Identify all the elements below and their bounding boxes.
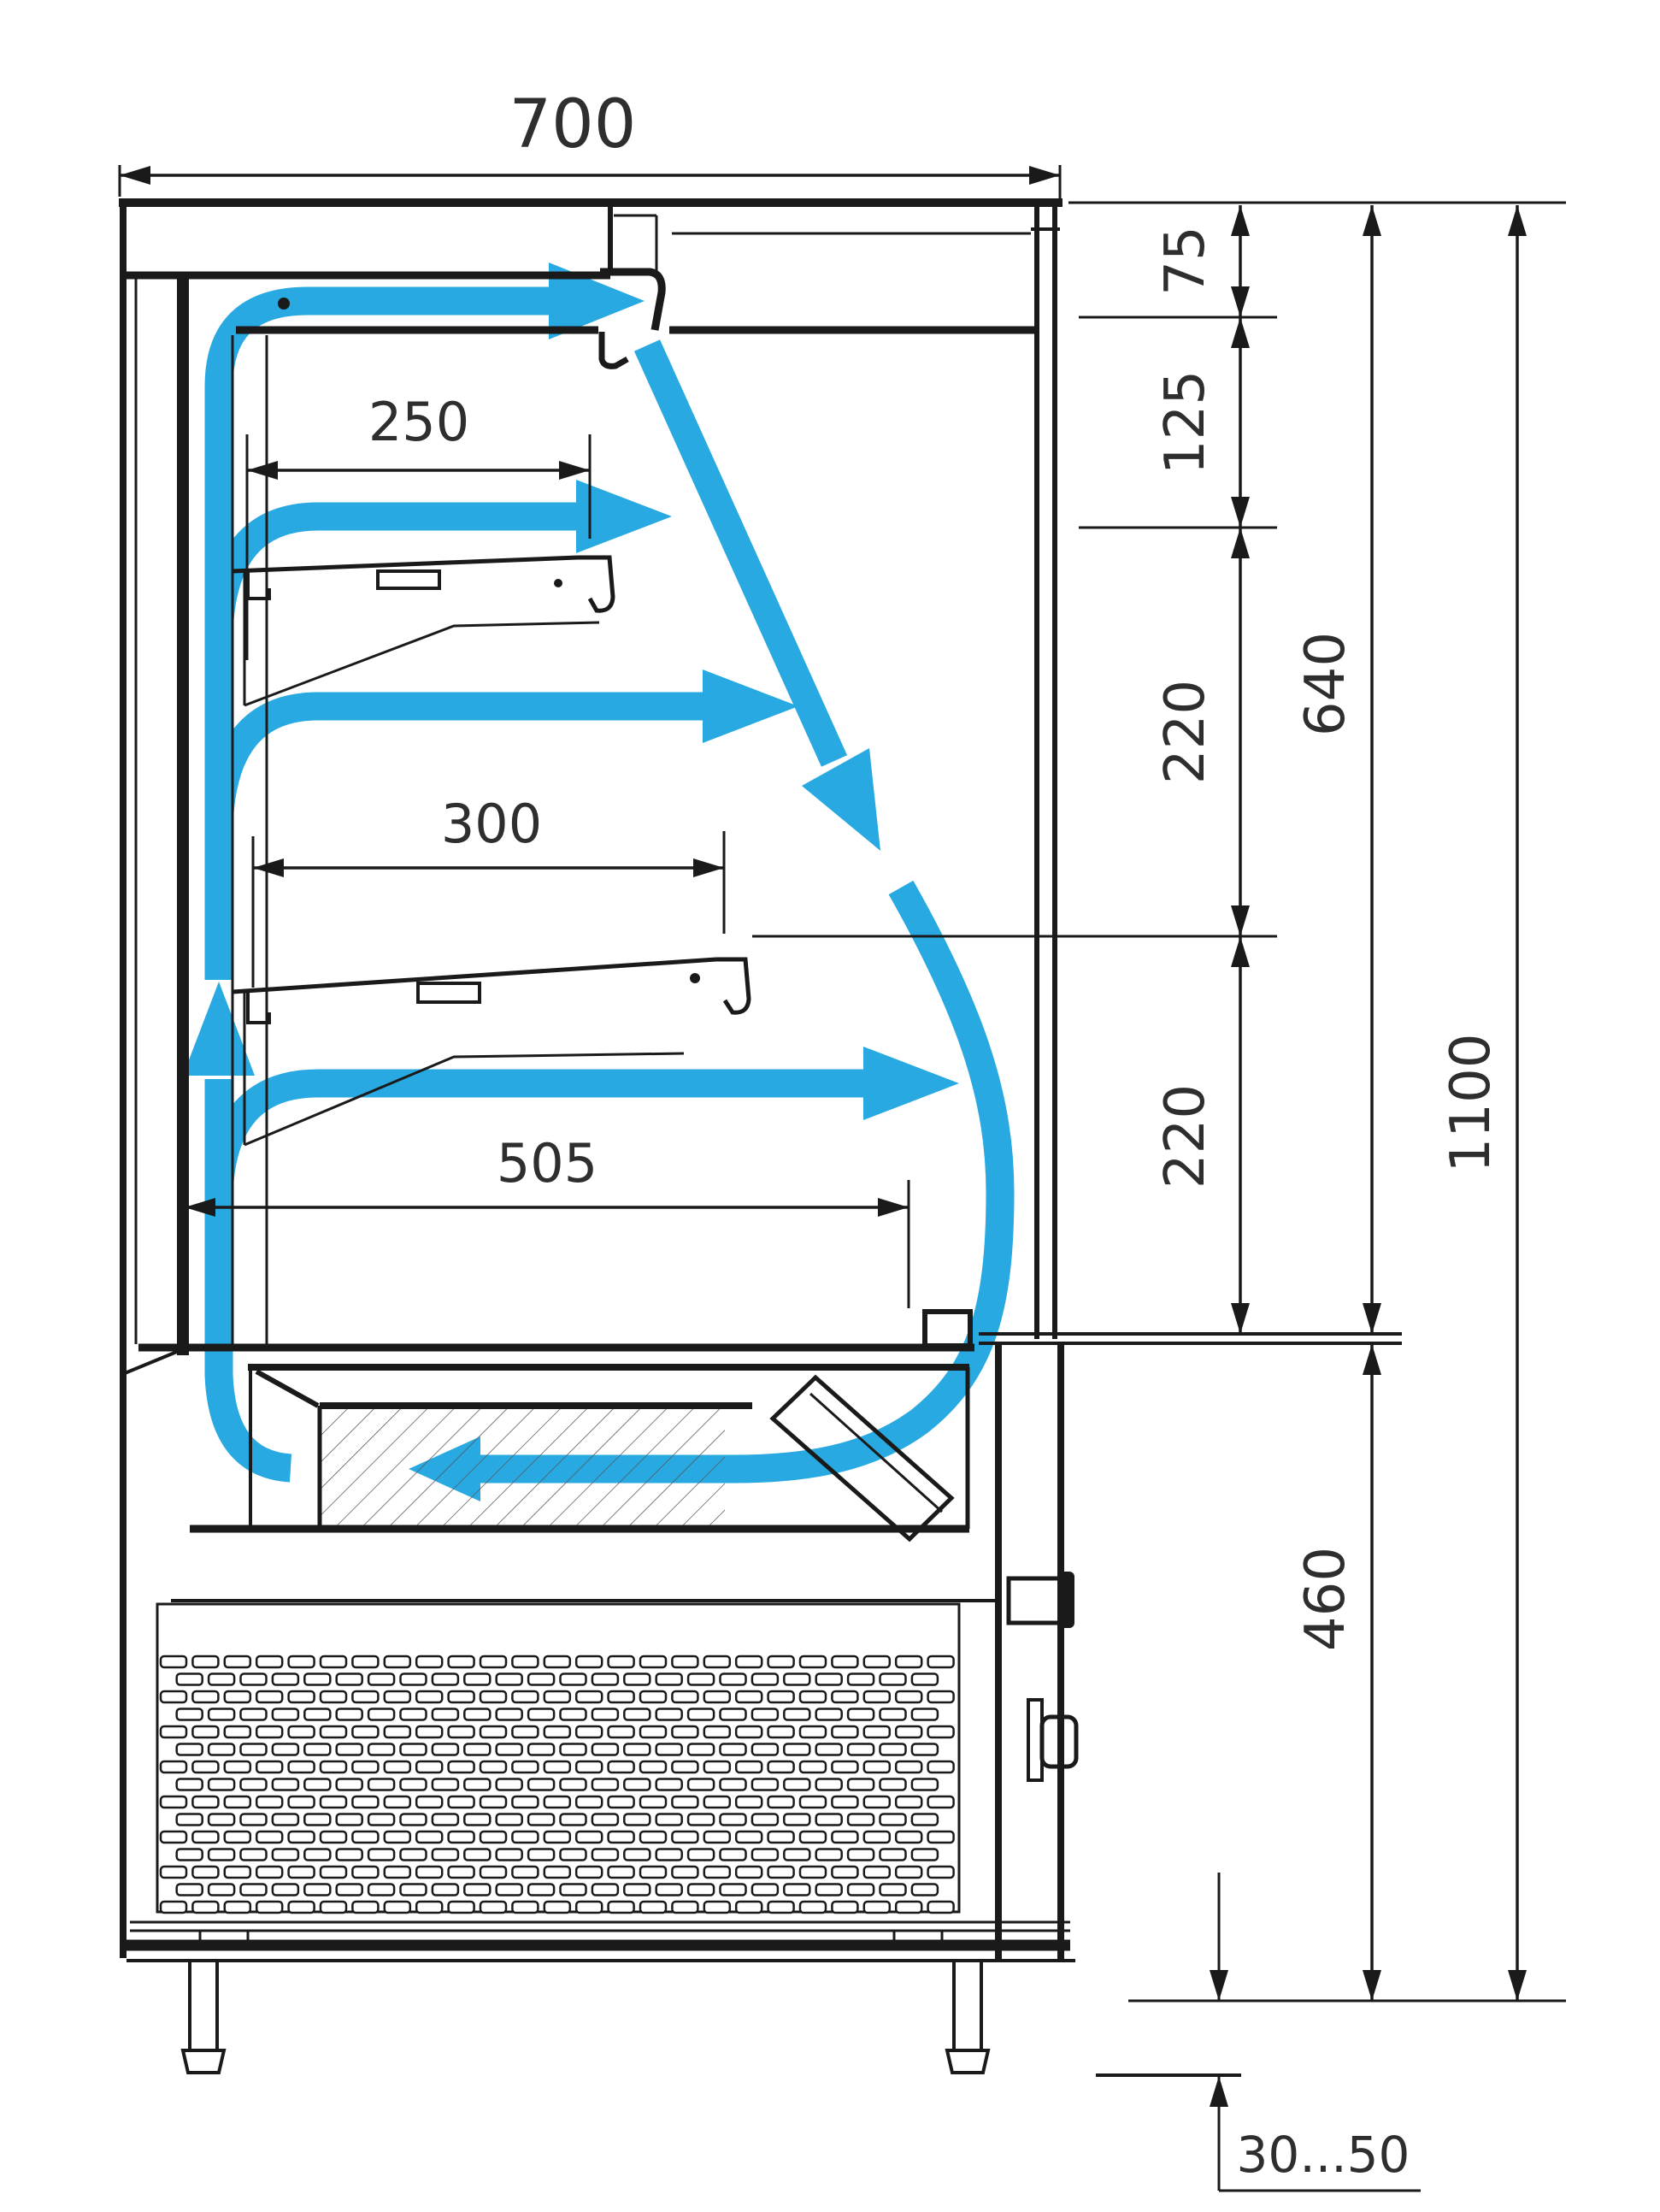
grille-slot xyxy=(401,1674,427,1685)
grille-slot xyxy=(304,1849,330,1861)
grille-slot xyxy=(401,1814,427,1826)
grille-slot xyxy=(304,1674,330,1685)
grille-slot xyxy=(832,1761,857,1773)
grille-slot xyxy=(784,1849,809,1861)
grille-slot xyxy=(800,1726,826,1737)
grille-slot xyxy=(704,1902,730,1913)
grille-slot xyxy=(497,1779,522,1790)
grille-slot xyxy=(912,1885,938,1896)
grille-slot xyxy=(464,1885,490,1896)
dim-feet: 30...50 xyxy=(1210,1873,1421,2191)
grille-slot xyxy=(800,1902,826,1913)
grille-slot xyxy=(864,1726,890,1737)
grille-slot xyxy=(161,1867,186,1878)
dim-1100-label: 1100 xyxy=(1439,1034,1503,1173)
grille-slot xyxy=(736,1832,762,1843)
grille-slot xyxy=(480,1761,506,1773)
grille-slot xyxy=(480,1832,506,1843)
grille-slot xyxy=(640,1691,666,1702)
grille-slot xyxy=(832,1726,857,1737)
grille-slot xyxy=(592,1779,618,1790)
grille-slot xyxy=(225,1867,250,1878)
grille-slot xyxy=(464,1674,490,1685)
grille-slot xyxy=(433,1709,458,1720)
grille-slot xyxy=(497,1674,522,1685)
grille-slot xyxy=(928,1726,954,1737)
grille-slot xyxy=(512,1761,538,1773)
grille-slot xyxy=(289,1656,315,1667)
grille-slot xyxy=(896,1656,921,1667)
grille-slot xyxy=(912,1744,938,1755)
grille-slot xyxy=(656,1779,682,1790)
grille-slot xyxy=(576,1796,602,1808)
grille-slot xyxy=(880,1814,906,1826)
shelf2-dot xyxy=(690,973,700,983)
grille-slot xyxy=(256,1691,282,1702)
grille-slot xyxy=(880,1849,906,1861)
grille-slot xyxy=(928,1691,954,1702)
grille-slot xyxy=(225,1691,250,1702)
grille-slot xyxy=(640,1796,666,1808)
grille-slot xyxy=(464,1744,490,1755)
grille-slot xyxy=(241,1814,267,1826)
grille-slot xyxy=(752,1849,778,1861)
grille-slot xyxy=(880,1674,906,1685)
grille-slot xyxy=(209,1849,234,1861)
grille-slot xyxy=(512,1691,538,1702)
grille-slot xyxy=(416,1867,442,1878)
grille-slot xyxy=(928,1867,954,1878)
grille-slot xyxy=(209,1744,234,1755)
grille-slot xyxy=(704,1867,730,1878)
dim-feet-label: 30...50 xyxy=(1237,2126,1410,2184)
grille-slot xyxy=(192,1832,218,1843)
grille-slot xyxy=(289,1867,315,1878)
grille-slot xyxy=(736,1656,762,1667)
grille-slot xyxy=(192,1796,218,1808)
grille-slot xyxy=(256,1902,282,1913)
grille-slot xyxy=(497,1885,522,1896)
grille-slot xyxy=(480,1867,506,1878)
grille-slot xyxy=(624,1814,650,1826)
grille-slot xyxy=(768,1796,794,1808)
grille-slot xyxy=(449,1902,474,1913)
shelf2-bracket-skirt xyxy=(244,1053,684,1145)
grille-slot xyxy=(816,1674,842,1685)
grille-slot xyxy=(576,1867,602,1878)
grille-slot xyxy=(656,1674,682,1685)
grille-slot xyxy=(449,1726,474,1737)
grille-slot xyxy=(416,1761,442,1773)
grille-slot xyxy=(721,1709,746,1720)
dim-460-label: 460 xyxy=(1294,1547,1357,1651)
grille-slot xyxy=(784,1709,809,1720)
grille-slot xyxy=(368,1744,394,1755)
grille-slot xyxy=(321,1902,346,1913)
grille-slot xyxy=(352,1656,378,1667)
grille-slot xyxy=(161,1761,186,1773)
grille-slot xyxy=(209,1709,234,1720)
grille-slot xyxy=(768,1656,794,1667)
grille-slot xyxy=(880,1779,906,1790)
grille-slot xyxy=(321,1832,346,1843)
grille-slot xyxy=(656,1744,682,1755)
grille-slot xyxy=(704,1726,730,1737)
grille-slot xyxy=(624,1744,650,1755)
grille-slot xyxy=(225,1902,250,1913)
grille-slot xyxy=(721,1674,746,1685)
grille-slot xyxy=(736,1761,762,1773)
grille-slot xyxy=(561,1674,586,1685)
deck-left-joint xyxy=(125,1349,183,1373)
well-left-slope xyxy=(256,1371,318,1406)
grille-slot xyxy=(848,1814,874,1826)
grille-slot xyxy=(880,1709,906,1720)
grille-slot xyxy=(672,1796,698,1808)
grille-slot xyxy=(512,1726,538,1737)
air-outlet-lower-lip xyxy=(602,332,627,366)
grille-slot xyxy=(449,1761,474,1773)
grille-slot xyxy=(688,1709,714,1720)
grille-slot xyxy=(784,1674,809,1685)
grille-slot xyxy=(352,1796,378,1808)
grille-slot xyxy=(592,1744,618,1755)
grille-slot xyxy=(368,1709,394,1720)
grille-slot xyxy=(241,1779,267,1790)
grille-slots xyxy=(161,1656,954,1913)
grille-slot xyxy=(688,1849,714,1861)
grille-slot xyxy=(832,1867,857,1878)
grille-slot xyxy=(352,1726,378,1737)
grille-slot xyxy=(401,1709,427,1720)
grille-slot xyxy=(656,1709,682,1720)
grille-slot xyxy=(896,1832,921,1843)
grille-slot xyxy=(289,1902,315,1913)
grille-slot xyxy=(256,1867,282,1878)
grille-slot xyxy=(401,1744,427,1755)
shelf1-surface xyxy=(233,557,578,571)
grille-slot xyxy=(161,1726,186,1737)
grille-slot xyxy=(592,1709,618,1720)
grille-slot xyxy=(304,1814,330,1826)
grille-slot xyxy=(289,1726,315,1737)
cabinet-structure xyxy=(119,202,1241,2075)
grille-slot xyxy=(800,1691,826,1702)
grille-slot xyxy=(640,1867,666,1878)
grille-slot xyxy=(768,1691,794,1702)
grille-slot xyxy=(321,1761,346,1773)
dim-700-label: 700 xyxy=(509,86,637,163)
grille-slot xyxy=(161,1656,186,1667)
grille-slot xyxy=(592,1885,618,1896)
foot-right xyxy=(947,1961,988,2073)
grille-slot xyxy=(241,1885,267,1896)
grille-slot xyxy=(864,1796,890,1808)
grille-slot xyxy=(401,1885,427,1896)
grille-slot xyxy=(592,1814,618,1826)
grille-slot xyxy=(177,1814,203,1826)
grille-slot xyxy=(464,1779,490,1790)
grille-slot xyxy=(321,1726,346,1737)
grille-slot xyxy=(864,1761,890,1773)
grille-slot xyxy=(624,1885,650,1896)
grille-slot xyxy=(752,1709,778,1720)
grille-slot xyxy=(433,1779,458,1790)
dim-640-label: 640 xyxy=(1294,632,1357,736)
grille-slot xyxy=(177,1849,203,1861)
grille-slot xyxy=(928,1796,954,1808)
grille-slot xyxy=(480,1656,506,1667)
grille-slot xyxy=(433,1885,458,1896)
foot-left-base xyxy=(183,2050,224,2073)
grille-slot xyxy=(704,1691,730,1702)
grille-slot xyxy=(896,1867,921,1878)
grille-slot xyxy=(768,1867,794,1878)
grille-slot xyxy=(609,1867,634,1878)
grille-slot xyxy=(225,1761,250,1773)
grille-slot xyxy=(624,1849,650,1861)
grille-slot xyxy=(528,1779,554,1790)
grille-slot xyxy=(816,1709,842,1720)
grille-slot xyxy=(289,1691,315,1702)
grille-slot xyxy=(609,1656,634,1667)
grille-slot xyxy=(656,1849,682,1861)
grille-slot xyxy=(545,1761,570,1773)
grille-slot xyxy=(289,1832,315,1843)
grille-slot xyxy=(832,1656,857,1667)
grille-slot xyxy=(928,1761,954,1773)
grille-slot xyxy=(416,1796,442,1808)
grille-slot xyxy=(385,1832,410,1843)
grille-slot xyxy=(800,1656,826,1667)
grille-slot xyxy=(576,1726,602,1737)
grille-slot xyxy=(688,1779,714,1790)
grille-slot xyxy=(337,1779,362,1790)
grille-slot xyxy=(816,1744,842,1755)
grille-slot xyxy=(721,1744,746,1755)
grille-slot xyxy=(273,1744,298,1755)
grille-slot xyxy=(464,1814,490,1826)
grille-slot xyxy=(609,1691,634,1702)
grille-slot xyxy=(864,1867,890,1878)
airflow-paths xyxy=(183,262,1000,1501)
grille-slot xyxy=(161,1691,186,1702)
grille-slot xyxy=(512,1796,538,1808)
grille-slot xyxy=(385,1867,410,1878)
grille-slot xyxy=(688,1674,714,1685)
grille-slot xyxy=(624,1674,650,1685)
grille-slot xyxy=(880,1885,906,1896)
grille-slot xyxy=(561,1779,586,1790)
grille-slot xyxy=(864,1902,890,1913)
grille-slot xyxy=(672,1656,698,1667)
grille-slot xyxy=(352,1867,378,1878)
grille-slot xyxy=(752,1674,778,1685)
grille-slot xyxy=(385,1761,410,1773)
dim-505-label: 505 xyxy=(497,1132,597,1194)
diagram-page: 700 75 125 220 220 640 xyxy=(0,0,1660,2212)
grille-slot xyxy=(497,1709,522,1720)
shelf2-front-hook xyxy=(716,959,749,1012)
grille-slot xyxy=(528,1885,554,1896)
grille-slot xyxy=(368,1814,394,1826)
grille-slot xyxy=(385,1902,410,1913)
grille-slot xyxy=(385,1726,410,1737)
grille-slot xyxy=(528,1744,554,1755)
grille-slot xyxy=(816,1849,842,1861)
grille-slot xyxy=(528,1674,554,1685)
shelf1-front-hook xyxy=(578,557,613,611)
grille-slot xyxy=(736,1902,762,1913)
grille-slot xyxy=(848,1849,874,1861)
grille-slot xyxy=(433,1814,458,1826)
grille-slot xyxy=(912,1709,938,1720)
grille-slot xyxy=(464,1709,490,1720)
grille-slot xyxy=(848,1744,874,1755)
grille-slot xyxy=(928,1656,954,1667)
grille-slot xyxy=(337,1849,362,1861)
grille-slot xyxy=(688,1744,714,1755)
grille-slot xyxy=(656,1885,682,1896)
shelf-1 xyxy=(233,557,613,705)
grille-slot xyxy=(880,1744,906,1755)
grille-slot xyxy=(624,1779,650,1790)
grille-slot xyxy=(497,1849,522,1861)
grille-slot xyxy=(624,1709,650,1720)
grille-slot xyxy=(609,1726,634,1737)
grille-slot xyxy=(816,1779,842,1790)
grille-slot xyxy=(177,1779,203,1790)
grille-slot xyxy=(752,1885,778,1896)
grille-slot xyxy=(433,1674,458,1685)
grille-slot xyxy=(704,1761,730,1773)
grille-slot xyxy=(192,1691,218,1702)
dim-300-label: 300 xyxy=(441,793,542,855)
grille-slot xyxy=(800,1832,826,1843)
grille-slot xyxy=(480,1902,506,1913)
grille-slot xyxy=(416,1656,442,1667)
grille-slot xyxy=(368,1674,394,1685)
grille-slot xyxy=(528,1849,554,1861)
foot-right-base xyxy=(947,2050,988,2073)
grille-slot xyxy=(192,1726,218,1737)
grille-slot xyxy=(161,1796,186,1808)
grille-slot xyxy=(672,1902,698,1913)
grille-slot xyxy=(592,1849,618,1861)
grille-slot xyxy=(721,1885,746,1896)
grille-slot xyxy=(337,1814,362,1826)
grille-slot xyxy=(816,1814,842,1826)
grille-slot xyxy=(848,1674,874,1685)
grille-slot xyxy=(721,1849,746,1861)
grille-slot xyxy=(352,1832,378,1843)
grille-slot xyxy=(928,1832,954,1843)
grille-slot xyxy=(736,1867,762,1878)
grille-slot xyxy=(640,1832,666,1843)
grille-slot xyxy=(576,1832,602,1843)
grille-slot xyxy=(704,1796,730,1808)
grille-slot xyxy=(480,1691,506,1702)
grille-slot xyxy=(192,1761,218,1773)
grille-slot xyxy=(273,1814,298,1826)
grille-slot xyxy=(736,1726,762,1737)
grille-slot xyxy=(928,1902,954,1913)
grille-slot xyxy=(545,1832,570,1843)
grille-slot xyxy=(672,1867,698,1878)
grille-slot xyxy=(848,1779,874,1790)
grille-slot xyxy=(561,1849,586,1861)
grille-slot xyxy=(289,1796,315,1808)
grille-slot xyxy=(545,1691,570,1702)
grille-slot xyxy=(209,1885,234,1896)
grille-slot xyxy=(352,1691,378,1702)
grille-slot xyxy=(368,1779,394,1790)
grille-slot xyxy=(704,1832,730,1843)
grille-slot xyxy=(768,1761,794,1773)
grille-slot xyxy=(256,1796,282,1808)
grille-slot xyxy=(512,1867,538,1878)
grille-slot xyxy=(273,1885,298,1896)
grille-slot xyxy=(512,1656,538,1667)
grille-slot xyxy=(912,1674,938,1685)
grille-slot xyxy=(256,1726,282,1737)
grille-slot xyxy=(784,1744,809,1755)
grille-slot xyxy=(192,1656,218,1667)
grille-slot xyxy=(688,1885,714,1896)
grille-slot xyxy=(289,1761,315,1773)
grille-slot xyxy=(385,1796,410,1808)
grille-slot xyxy=(337,1709,362,1720)
grille-slot xyxy=(672,1691,698,1702)
grille-slot xyxy=(576,1656,602,1667)
grille-slot xyxy=(273,1779,298,1790)
grille-slot xyxy=(528,1709,554,1720)
grille-slot xyxy=(256,1832,282,1843)
grille-slot xyxy=(912,1849,938,1861)
grille-slot xyxy=(480,1796,506,1808)
door-lock-box xyxy=(1009,1578,1065,1623)
shelf1-branch xyxy=(219,516,576,634)
grille-slot xyxy=(209,1814,234,1826)
dim-220b-label: 220 xyxy=(1154,1084,1217,1189)
grille-slot xyxy=(561,1814,586,1826)
grille-slot xyxy=(832,1902,857,1913)
grille-slot xyxy=(416,1832,442,1843)
grille-slot xyxy=(337,1885,362,1896)
door-lock-latch xyxy=(1059,1572,1074,1628)
grille-slot xyxy=(416,1902,442,1913)
grille-slot xyxy=(561,1709,586,1720)
grille-slot xyxy=(416,1691,442,1702)
grille-slot xyxy=(640,1726,666,1737)
grille-slot xyxy=(640,1902,666,1913)
grille-slot xyxy=(225,1832,250,1843)
grille-slot xyxy=(752,1744,778,1755)
grille-slot xyxy=(304,1779,330,1790)
grille-slot xyxy=(209,1674,234,1685)
grille-slot xyxy=(449,1656,474,1667)
grille-slot xyxy=(401,1779,427,1790)
shelf2-surface xyxy=(233,959,716,992)
grille-slot xyxy=(576,1902,602,1913)
grille-slot xyxy=(241,1674,267,1685)
grille-slot xyxy=(449,1796,474,1808)
grille-slot xyxy=(480,1726,506,1737)
grille-slot xyxy=(848,1885,874,1896)
grille-slot xyxy=(273,1849,298,1861)
grille-slot xyxy=(321,1656,346,1667)
grille-slot xyxy=(800,1796,826,1808)
